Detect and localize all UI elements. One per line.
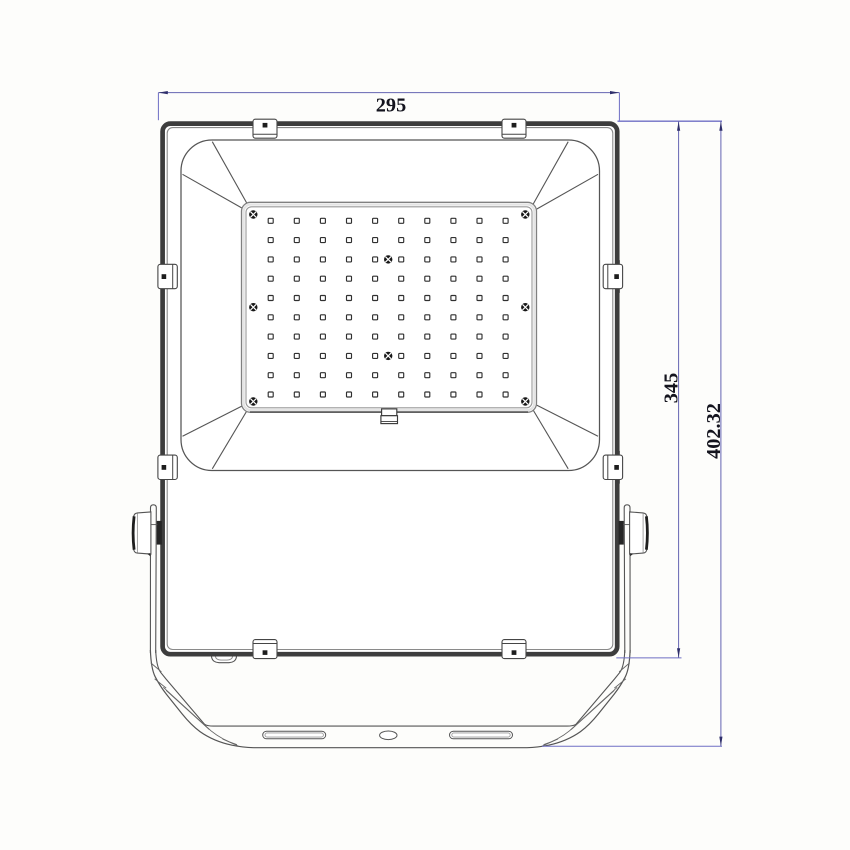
svg-text:295: 295: [376, 95, 406, 117]
svg-text:345: 345: [661, 373, 683, 403]
svg-text:402.32: 402.32: [703, 403, 725, 459]
